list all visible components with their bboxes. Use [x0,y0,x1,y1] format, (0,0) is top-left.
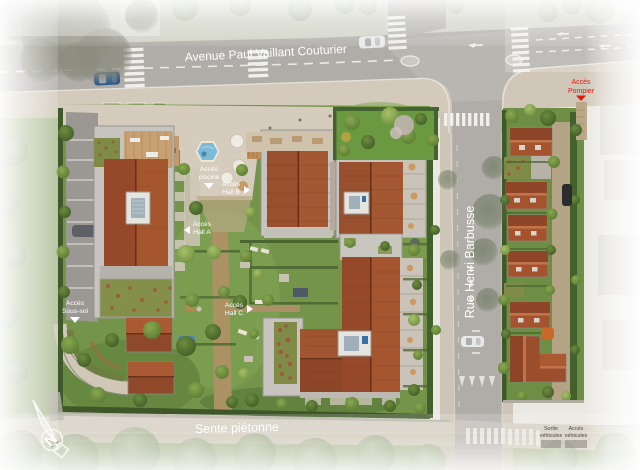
svg-text:Accès: Accès [225,302,244,309]
svg-text:Hall B: Hall B [222,189,240,196]
svg-text:Hall A: Hall A [193,229,211,236]
svg-text:Sente piétonne: Sente piétonne [195,420,279,436]
svg-text:véhicules: véhicules [565,433,588,439]
svg-text:Sous-sol: Sous-sol [62,308,89,315]
svg-text:piscine: piscine [199,174,220,181]
svg-text:Sortie: Sortie [544,426,558,432]
svg-text:Hall C: Hall C [225,310,243,317]
svg-text:Accès: Accès [569,426,584,432]
svg-text:Accès: Accès [193,221,212,228]
svg-text:Accès: Accès [222,181,241,188]
svg-text:Pompier: Pompier [568,88,595,95]
svg-text:Accès: Accès [571,79,591,86]
svg-text:Accès: Accès [66,300,85,307]
svg-text:Accès: Accès [200,166,219,173]
svg-text:Rue Henri Barbusse: Rue Henri Barbusse [463,206,477,319]
svg-text:véhicules: véhicules [540,433,563,439]
